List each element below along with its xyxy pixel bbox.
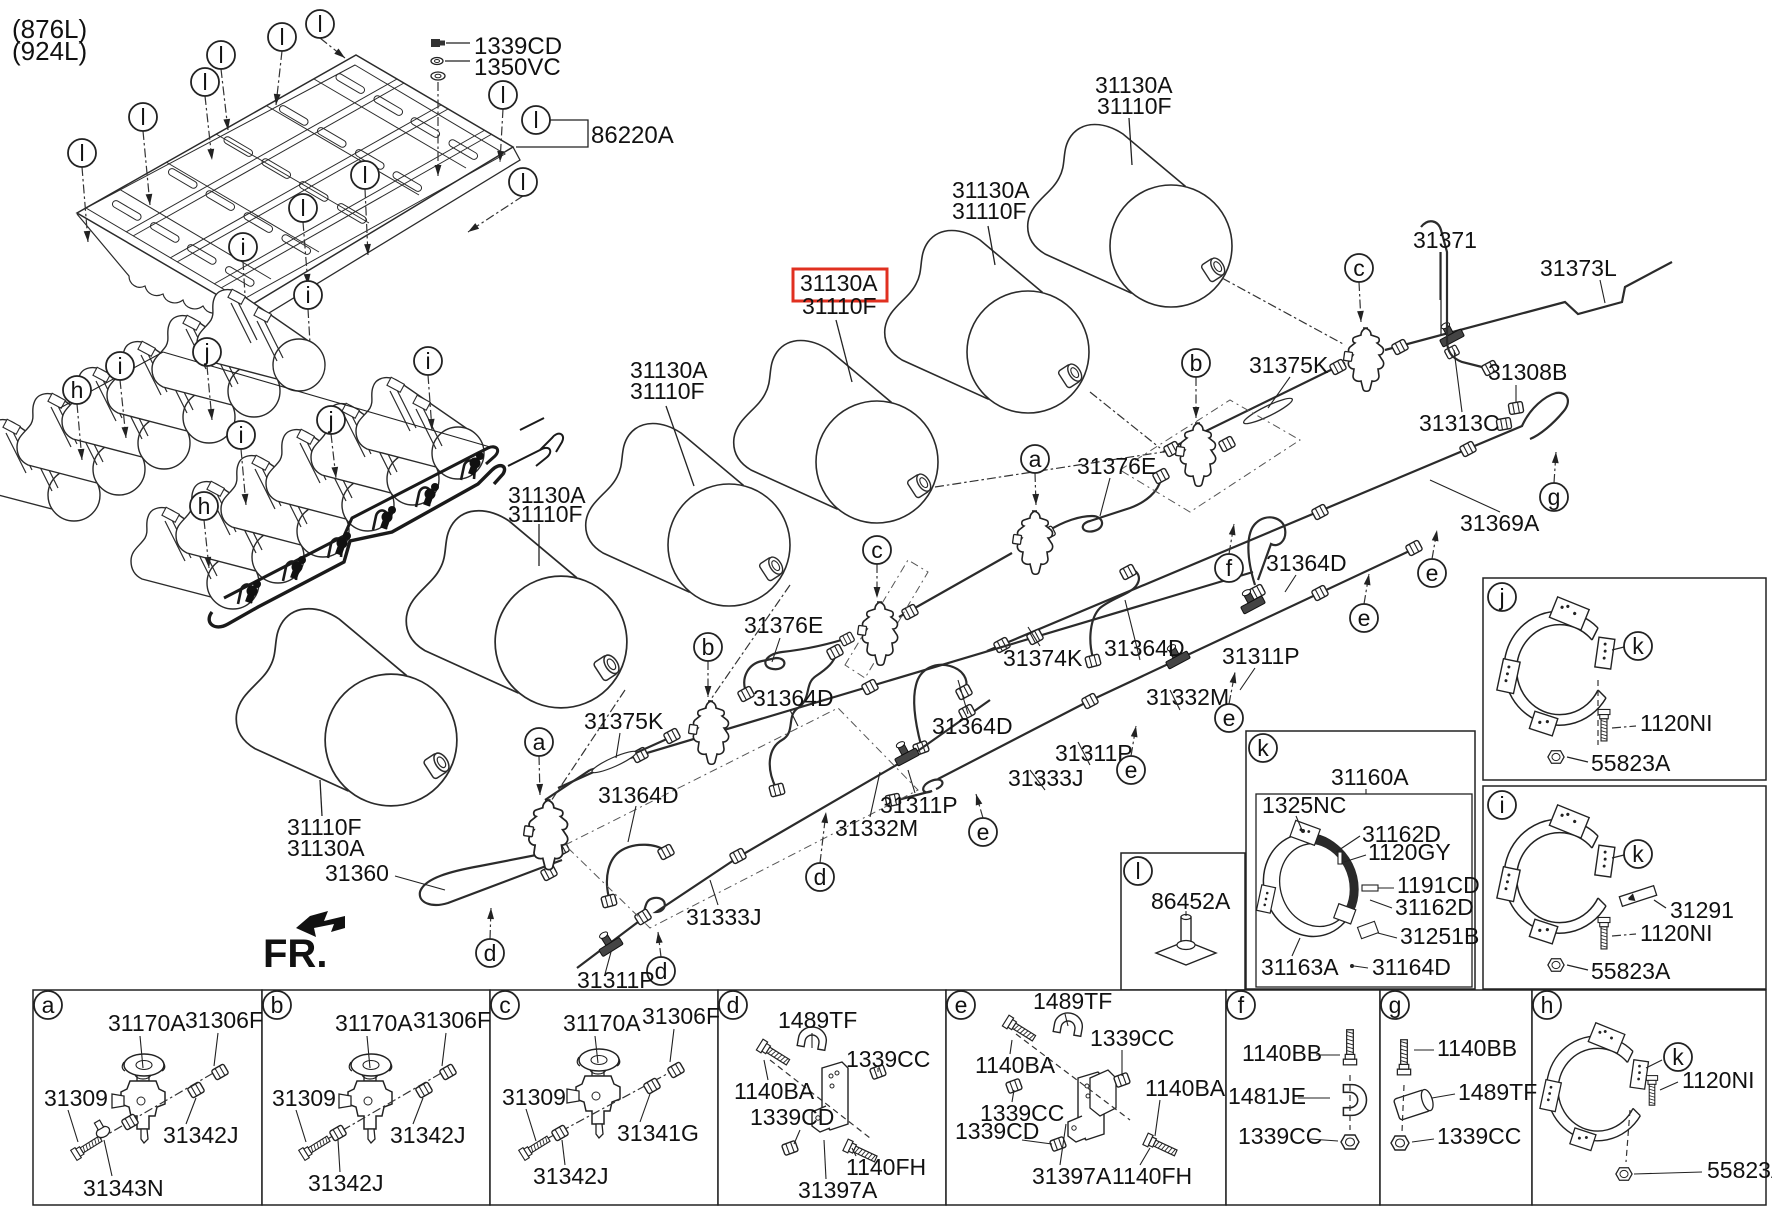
svg-text:l: l — [362, 162, 367, 188]
svg-text:k: k — [1257, 735, 1269, 761]
svg-text:l: l — [279, 24, 284, 50]
svg-text:31164D: 31164D — [1372, 954, 1451, 980]
svg-text:31306F: 31306F — [642, 1003, 720, 1029]
svg-text:i: i — [1499, 792, 1504, 818]
svg-text:h: h — [198, 493, 211, 519]
svg-text:l: l — [300, 195, 305, 221]
svg-text:l: l — [520, 169, 525, 195]
svg-text:31170A: 31170A — [108, 1010, 186, 1036]
svg-text:31308B: 31308B — [1488, 359, 1567, 385]
svg-text:31397A: 31397A — [1032, 1163, 1112, 1189]
svg-text:d: d — [727, 992, 740, 1018]
svg-text:c: c — [499, 992, 511, 1018]
svg-text:1481JE: 1481JE — [1228, 1083, 1306, 1109]
svg-text:31251B: 31251B — [1400, 923, 1479, 949]
svg-text:1339CC: 1339CC — [1437, 1123, 1521, 1149]
svg-text:1489TF: 1489TF — [1458, 1079, 1537, 1105]
svg-text:31342J: 31342J — [390, 1122, 465, 1148]
svg-text:1140FH: 1140FH — [1112, 1163, 1192, 1189]
svg-text:31364D: 31364D — [1266, 550, 1347, 576]
svg-text:31364D: 31364D — [1104, 635, 1185, 661]
svg-text:31160A: 31160A — [1331, 764, 1409, 790]
svg-text:31376E: 31376E — [1077, 453, 1156, 479]
svg-text:31371: 31371 — [1413, 227, 1477, 253]
svg-text:86452A: 86452A — [1151, 888, 1231, 914]
svg-text:31376E: 31376E — [744, 612, 823, 638]
svg-text:31309: 31309 — [44, 1085, 108, 1111]
svg-text:i: i — [305, 282, 310, 308]
svg-text:31309: 31309 — [272, 1085, 336, 1111]
svg-text:(924L): (924L) — [12, 36, 87, 66]
svg-text:31332M: 31332M — [835, 815, 918, 841]
svg-text:31170A: 31170A — [335, 1010, 413, 1036]
svg-text:j: j — [327, 407, 333, 433]
svg-text:b: b — [702, 634, 715, 660]
svg-text:31364D: 31364D — [753, 685, 834, 711]
svg-text:e: e — [977, 819, 990, 845]
svg-text:55823A: 55823A — [1591, 750, 1671, 776]
svg-text:j: j — [203, 339, 209, 365]
svg-text:j: j — [1498, 584, 1504, 610]
svg-text:l: l — [500, 82, 505, 108]
svg-text:31332M: 31332M — [1146, 684, 1229, 710]
svg-text:l: l — [317, 11, 322, 37]
svg-text:l: l — [79, 140, 84, 166]
svg-text:31374K: 31374K — [1003, 645, 1083, 671]
svg-text:l: l — [140, 104, 145, 130]
svg-text:31364D: 31364D — [598, 782, 679, 808]
svg-text:31311P: 31311P — [1222, 643, 1300, 669]
svg-text:31110F: 31110F — [802, 293, 877, 319]
svg-text:i: i — [117, 353, 122, 379]
svg-text:k: k — [1632, 841, 1644, 867]
svg-text:a: a — [42, 992, 55, 1018]
svg-text:1325NC: 1325NC — [1262, 792, 1346, 818]
svg-text:1120GY: 1120GY — [1368, 839, 1451, 865]
svg-text:1140BA: 1140BA — [734, 1078, 815, 1104]
svg-text:d: d — [655, 958, 668, 984]
svg-text:e: e — [1358, 605, 1371, 631]
svg-text:1489TF: 1489TF — [778, 1007, 857, 1033]
svg-text:31162D: 31162D — [1395, 894, 1474, 920]
svg-text:31342J: 31342J — [533, 1163, 608, 1189]
svg-text:55823A: 55823A — [1707, 1157, 1772, 1183]
svg-text:1120NI: 1120NI — [1640, 710, 1712, 736]
svg-text:31311P: 31311P — [880, 792, 958, 818]
svg-text:31110F: 31110F — [952, 198, 1027, 224]
svg-text:1489TF: 1489TF — [1033, 988, 1112, 1014]
svg-text:1339CC: 1339CC — [846, 1046, 930, 1072]
svg-text:31343N: 31343N — [83, 1175, 164, 1201]
svg-text:d: d — [814, 864, 827, 890]
svg-text:31375K: 31375K — [1249, 352, 1329, 378]
svg-text:31110F: 31110F — [508, 501, 583, 527]
svg-text:1339CD: 1339CD — [750, 1104, 834, 1130]
svg-text:31163A: 31163A — [1261, 954, 1339, 980]
svg-text:31342J: 31342J — [308, 1170, 383, 1196]
svg-text:1350VC: 1350VC — [474, 54, 561, 81]
svg-text:31360: 31360 — [325, 860, 389, 886]
svg-text:31364D: 31364D — [932, 713, 1013, 739]
svg-text:31333J: 31333J — [686, 904, 761, 930]
svg-text:31110F: 31110F — [1097, 93, 1172, 119]
svg-text:1339CC: 1339CC — [1238, 1123, 1322, 1149]
svg-text:f: f — [1226, 555, 1233, 581]
svg-text:h: h — [71, 377, 84, 403]
svg-text:1339CC: 1339CC — [1090, 1025, 1174, 1051]
svg-text:e: e — [955, 992, 968, 1018]
svg-text:i: i — [240, 234, 245, 260]
svg-text:f: f — [1238, 992, 1245, 1018]
svg-text:55823A: 55823A — [1591, 958, 1671, 984]
svg-text:l: l — [533, 107, 538, 133]
svg-text:31313C: 31313C — [1419, 410, 1500, 436]
svg-text:31333J: 31333J — [1008, 765, 1083, 791]
svg-text:31110F: 31110F — [630, 378, 705, 404]
svg-text:31397A: 31397A — [798, 1177, 878, 1203]
svg-text:a: a — [1029, 446, 1042, 472]
svg-text:g: g — [1389, 992, 1402, 1018]
svg-text:31311P: 31311P — [577, 967, 655, 993]
svg-text:l: l — [218, 42, 223, 68]
svg-text:h: h — [1541, 992, 1554, 1018]
svg-text:a: a — [533, 729, 546, 755]
svg-text:31369A: 31369A — [1460, 510, 1540, 536]
svg-text:31341G: 31341G — [617, 1120, 699, 1146]
svg-text:1120NI: 1120NI — [1682, 1067, 1754, 1093]
svg-text:l: l — [202, 69, 207, 95]
svg-text:31306F: 31306F — [185, 1007, 263, 1033]
svg-text:i: i — [238, 422, 243, 448]
svg-text:1140BA: 1140BA — [975, 1052, 1056, 1078]
svg-text:31373L: 31373L — [1540, 255, 1617, 281]
svg-text:k: k — [1632, 633, 1644, 659]
svg-text:31306F: 31306F — [413, 1007, 491, 1033]
svg-text:i: i — [425, 348, 430, 374]
svg-text:b: b — [1190, 350, 1203, 376]
svg-text:d: d — [484, 940, 497, 966]
svg-text:e: e — [1426, 560, 1439, 586]
svg-text:l: l — [1135, 858, 1140, 884]
svg-text:31309: 31309 — [502, 1084, 566, 1110]
svg-text:FR.: FR. — [263, 932, 327, 976]
svg-text:c: c — [1353, 255, 1365, 281]
svg-text:c: c — [871, 537, 883, 563]
svg-text:1140BB: 1140BB — [1437, 1035, 1517, 1061]
svg-text:31375K: 31375K — [584, 708, 664, 734]
svg-text:1140BA: 1140BA — [1145, 1075, 1226, 1101]
svg-text:b: b — [271, 992, 284, 1018]
svg-text:g: g — [1548, 484, 1561, 510]
svg-text:1120NI: 1120NI — [1640, 920, 1712, 946]
svg-text:31311P: 31311P — [1055, 740, 1133, 766]
svg-text:31342J: 31342J — [163, 1122, 238, 1148]
svg-text:86220A: 86220A — [591, 122, 674, 149]
svg-text:1140BB: 1140BB — [1242, 1040, 1322, 1066]
svg-text:31130A: 31130A — [287, 835, 365, 861]
svg-text:31170A: 31170A — [563, 1010, 641, 1036]
